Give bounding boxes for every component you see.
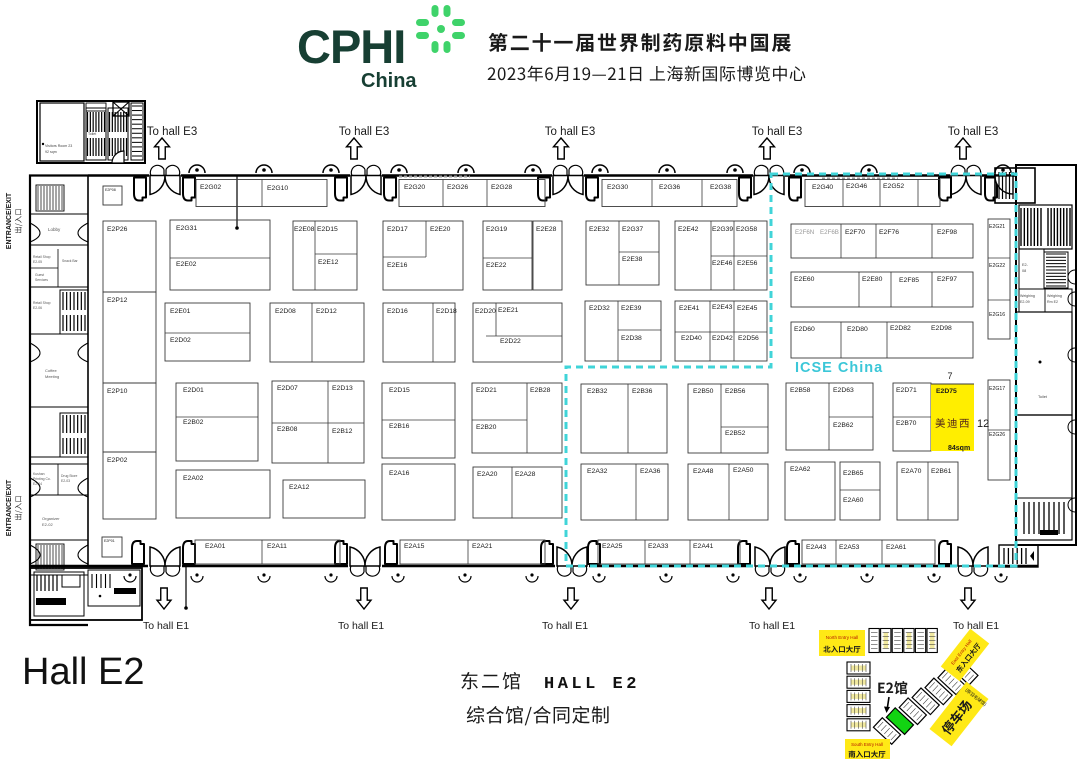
svg-text:E2-09: E2-09 bbox=[1020, 300, 1030, 304]
svg-text:To hall E1: To hall E1 bbox=[542, 620, 588, 632]
svg-text:E2G31: E2G31 bbox=[176, 225, 197, 232]
svg-text:E2D71: E2D71 bbox=[896, 387, 917, 394]
svg-text:North Entry Hall: North Entry Hall bbox=[826, 635, 858, 640]
svg-text:E2D01: E2D01 bbox=[183, 387, 204, 394]
svg-text:E2G36: E2G36 bbox=[659, 184, 680, 191]
svg-text:E2B52: E2B52 bbox=[725, 430, 746, 437]
svg-text:E2B32: E2B32 bbox=[587, 388, 608, 395]
svg-text:E2D56: E2D56 bbox=[738, 335, 759, 342]
svg-text:E2E42: E2E42 bbox=[678, 226, 699, 233]
svg-text:E2A62: E2A62 bbox=[790, 466, 811, 473]
svg-text:E2F70: E2F70 bbox=[845, 229, 865, 236]
svg-text:Weighing: Weighing bbox=[1047, 294, 1062, 298]
svg-text:To hall E1: To hall E1 bbox=[143, 620, 189, 632]
svg-text:ICSE China: ICSE China bbox=[795, 360, 883, 376]
svg-text:E2E46: E2E46 bbox=[712, 260, 733, 267]
svg-text:E2D21: E2D21 bbox=[476, 387, 497, 394]
svg-text:E2P12: E2P12 bbox=[107, 297, 128, 304]
svg-text:E2G19: E2G19 bbox=[486, 226, 507, 233]
svg-text:CPHI: CPHI bbox=[297, 20, 405, 73]
svg-text:China: China bbox=[361, 70, 417, 92]
svg-text:E2A32: E2A32 bbox=[587, 468, 608, 475]
svg-text:Meeting: Meeting bbox=[45, 374, 59, 379]
svg-text:E2G17: E2G17 bbox=[989, 386, 1005, 392]
svg-text:Printing Co.: Printing Co. bbox=[33, 477, 51, 481]
svg-text:E2-: E2- bbox=[1022, 263, 1029, 267]
svg-text:Kushan: Kushan bbox=[33, 472, 45, 476]
svg-text:Snack Bar: Snack Bar bbox=[62, 259, 79, 263]
svg-text:E2G20: E2G20 bbox=[404, 184, 425, 191]
svg-text:To hall E1: To hall E1 bbox=[953, 620, 999, 632]
svg-text:E2A43: E2A43 bbox=[806, 544, 827, 551]
svg-text:E2F98: E2F98 bbox=[937, 229, 957, 236]
svg-text:E2B50: E2B50 bbox=[693, 388, 714, 395]
svg-text:E2D07: E2D07 bbox=[277, 385, 298, 392]
svg-text:E2D15: E2D15 bbox=[389, 387, 410, 394]
svg-text:E2A15: E2A15 bbox=[404, 543, 425, 550]
svg-text:Visitors Room 23: Visitors Room 23 bbox=[45, 144, 72, 148]
svg-text:E2A28: E2A28 bbox=[515, 471, 536, 478]
svg-text:E2F6N: E2F6N bbox=[795, 229, 814, 236]
svg-text:E2G37: E2G37 bbox=[622, 226, 643, 233]
svg-text:To hall E3: To hall E3 bbox=[339, 126, 390, 138]
svg-text:Weighing: Weighing bbox=[1020, 294, 1035, 298]
svg-text:E2A70: E2A70 bbox=[901, 468, 922, 475]
svg-text:E2A11: E2A11 bbox=[267, 543, 287, 550]
svg-text:Drug Store: Drug Store bbox=[61, 474, 78, 478]
svg-text:E2A41: E2A41 bbox=[693, 543, 714, 550]
svg-text:E2E32: E2E32 bbox=[589, 226, 610, 233]
svg-text:E2D13: E2D13 bbox=[332, 385, 353, 392]
svg-text:E2E39: E2E39 bbox=[621, 305, 642, 312]
svg-text:E2E08: E2E08 bbox=[294, 226, 315, 233]
svg-text:E2A21: E2A21 bbox=[472, 543, 493, 550]
svg-text:To hall E3: To hall E3 bbox=[752, 126, 803, 138]
svg-text:E2A50: E2A50 bbox=[733, 467, 754, 474]
svg-text:E2E60: E2E60 bbox=[794, 276, 815, 283]
svg-text:E2A61: E2A61 bbox=[886, 544, 907, 551]
svg-text:E2E20: E2E20 bbox=[430, 226, 451, 233]
svg-text:E2E56: E2E56 bbox=[737, 260, 758, 267]
svg-text:E2B61: E2B61 bbox=[931, 468, 952, 475]
svg-text:E2D16: E2D16 bbox=[387, 308, 408, 315]
svg-text:To hall E3: To hall E3 bbox=[545, 126, 596, 138]
svg-text:E2E43: E2E43 bbox=[712, 304, 733, 311]
svg-text:E2G26: E2G26 bbox=[447, 184, 468, 191]
svg-text:To hall E1: To hall E1 bbox=[749, 620, 795, 632]
svg-text:To hall E1: To hall E1 bbox=[338, 620, 384, 632]
svg-text:E2D17: E2D17 bbox=[387, 226, 408, 233]
svg-text:Toilet: Toilet bbox=[88, 132, 96, 136]
svg-text:Hall E2: Hall E2 bbox=[22, 651, 145, 693]
svg-text:E2D02: E2D02 bbox=[170, 337, 191, 344]
svg-text:E2B20: E2B20 bbox=[476, 424, 497, 431]
svg-text:E2D75: E2D75 bbox=[936, 388, 957, 395]
svg-text:ENTRANCE/EXIT: ENTRANCE/EXIT bbox=[6, 479, 13, 536]
svg-text:E2P26: E2P26 bbox=[107, 226, 128, 233]
svg-text:E2G58: E2G58 bbox=[736, 226, 757, 233]
svg-text:E2G40: E2G40 bbox=[812, 184, 833, 191]
svg-text:E2F85: E2F85 bbox=[899, 277, 919, 284]
svg-text:Organizer: Organizer bbox=[42, 516, 60, 521]
svg-text:E2A16: E2A16 bbox=[389, 470, 410, 477]
svg-text:E2P10: E2P10 bbox=[107, 388, 128, 395]
svg-text:E2G30: E2G30 bbox=[607, 184, 628, 191]
svg-text:7: 7 bbox=[947, 371, 952, 381]
svg-text:E2D63: E2D63 bbox=[833, 387, 854, 394]
svg-text:E2A02: E2A02 bbox=[183, 475, 204, 482]
svg-text:E2B58: E2B58 bbox=[790, 387, 811, 394]
svg-text:E2D82: E2D82 bbox=[890, 325, 911, 332]
svg-text:Retail Shop: Retail Shop bbox=[33, 301, 51, 305]
svg-text:E2E21: E2E21 bbox=[498, 307, 519, 314]
svg-text:Retail Shop: Retail Shop bbox=[33, 255, 51, 259]
svg-text:E2B12: E2B12 bbox=[332, 428, 353, 435]
svg-text:E2G38: E2G38 bbox=[710, 184, 731, 191]
svg-text:E2D32: E2D32 bbox=[589, 305, 610, 312]
svg-text:E2E28: E2E28 bbox=[536, 226, 557, 233]
svg-text:E2B56: E2B56 bbox=[725, 388, 746, 395]
svg-text:E2P01: E2P01 bbox=[104, 539, 115, 543]
svg-text:E2E38: E2E38 bbox=[622, 256, 643, 263]
svg-text:12: 12 bbox=[977, 418, 989, 430]
svg-text:08: 08 bbox=[1022, 269, 1026, 273]
svg-text:E2A60: E2A60 bbox=[843, 497, 864, 504]
svg-text:E2P02: E2P02 bbox=[107, 457, 128, 464]
svg-text:E2E45: E2E45 bbox=[737, 305, 758, 312]
svg-text:E2D80: E2D80 bbox=[847, 326, 868, 333]
svg-text:E2A36: E2A36 bbox=[640, 468, 661, 475]
svg-text:E2B08: E2B08 bbox=[277, 426, 298, 433]
svg-text:E2D08: E2D08 bbox=[275, 308, 296, 315]
svg-text:E2A25: E2A25 bbox=[602, 543, 623, 550]
svg-text:Toilet: Toilet bbox=[1038, 395, 1048, 399]
svg-text:E2G02: E2G02 bbox=[200, 184, 221, 191]
svg-text:E2G39: E2G39 bbox=[712, 226, 733, 233]
svg-text:E2G10: E2G10 bbox=[267, 185, 288, 192]
svg-text:E2B28: E2B28 bbox=[530, 387, 551, 394]
svg-text:E2G52: E2G52 bbox=[883, 183, 904, 190]
svg-text:E2E12: E2E12 bbox=[318, 259, 339, 266]
svg-text:E2F76: E2F76 bbox=[879, 229, 899, 236]
svg-text:E2D22: E2D22 bbox=[500, 338, 521, 345]
svg-text:To hall E3: To hall E3 bbox=[948, 126, 999, 138]
svg-text:E2D38: E2D38 bbox=[621, 335, 642, 342]
svg-text:E2E41: E2E41 bbox=[679, 305, 700, 312]
svg-text:E2B36: E2B36 bbox=[632, 388, 653, 395]
svg-text:E2A48: E2A48 bbox=[693, 468, 714, 475]
svg-text:E2F97: E2F97 bbox=[937, 276, 957, 283]
svg-text:E2A12: E2A12 bbox=[289, 484, 310, 491]
svg-text:E2G46: E2G46 bbox=[846, 183, 867, 190]
svg-text:Lobby: Lobby bbox=[48, 227, 61, 232]
svg-text:E2E02: E2E02 bbox=[176, 261, 197, 268]
svg-text:South Entry Hall: South Entry Hall bbox=[851, 742, 883, 747]
svg-text:E2G28: E2G28 bbox=[491, 184, 512, 191]
svg-text:E2-06: E2-06 bbox=[33, 306, 42, 310]
svg-text:Coffee: Coffee bbox=[45, 368, 57, 373]
svg-text:E2G26: E2G26 bbox=[989, 432, 1005, 438]
svg-text:E2E16: E2E16 bbox=[387, 262, 408, 269]
svg-text:E2-02: E2-02 bbox=[42, 522, 53, 527]
svg-text:E2B70: E2B70 bbox=[896, 420, 917, 427]
svg-text:E2B02: E2B02 bbox=[183, 419, 204, 426]
svg-text:E2B16: E2B16 bbox=[389, 423, 410, 430]
svg-text:E2E80: E2E80 bbox=[862, 276, 883, 283]
svg-text:92 sqm: 92 sqm bbox=[45, 150, 57, 154]
svg-text:E2D18: E2D18 bbox=[436, 308, 457, 315]
svg-text:ENTRANCE/EXIT: ENTRANCE/EXIT bbox=[6, 192, 13, 249]
svg-text:E2G16: E2G16 bbox=[989, 312, 1005, 318]
svg-text:E2D98: E2D98 bbox=[931, 325, 952, 332]
svg-text:E2D20: E2D20 bbox=[475, 308, 496, 315]
svg-text:E2-03: E2-03 bbox=[61, 479, 70, 483]
svg-text:E2-05: E2-05 bbox=[33, 260, 42, 264]
svg-text:E2E01: E2E01 bbox=[170, 308, 191, 315]
svg-text:To hall E3: To hall E3 bbox=[147, 126, 198, 138]
svg-text:HALL E2: HALL E2 bbox=[544, 675, 640, 694]
svg-text:E2D60: E2D60 bbox=[794, 326, 815, 333]
svg-text:E2A01: E2A01 bbox=[205, 543, 226, 550]
svg-text:E2A33: E2A33 bbox=[648, 543, 669, 550]
svg-text:E2D42: E2D42 bbox=[712, 335, 733, 342]
svg-text:E2D12: E2D12 bbox=[316, 308, 337, 315]
svg-text:E2F6B: E2F6B bbox=[820, 229, 839, 236]
svg-text:E2D40: E2D40 bbox=[681, 335, 702, 342]
svg-text:E2G21: E2G21 bbox=[989, 224, 1005, 230]
svg-text:Guest: Guest bbox=[35, 273, 44, 277]
svg-text:E2P08: E2P08 bbox=[105, 188, 116, 192]
svg-text:Rm E2: Rm E2 bbox=[1047, 300, 1058, 304]
svg-text:E2B62: E2B62 bbox=[833, 422, 854, 429]
svg-text:E2G22: E2G22 bbox=[989, 263, 1005, 269]
svg-text:E2B65: E2B65 bbox=[843, 470, 864, 477]
svg-text:E2E22: E2E22 bbox=[486, 262, 507, 269]
svg-text:E2D15: E2D15 bbox=[317, 226, 338, 233]
svg-text:84sqm: 84sqm bbox=[948, 445, 970, 452]
svg-text:E2A20: E2A20 bbox=[477, 471, 498, 478]
svg-text:Services: Services bbox=[35, 278, 48, 282]
svg-text:E2A53: E2A53 bbox=[839, 544, 860, 551]
